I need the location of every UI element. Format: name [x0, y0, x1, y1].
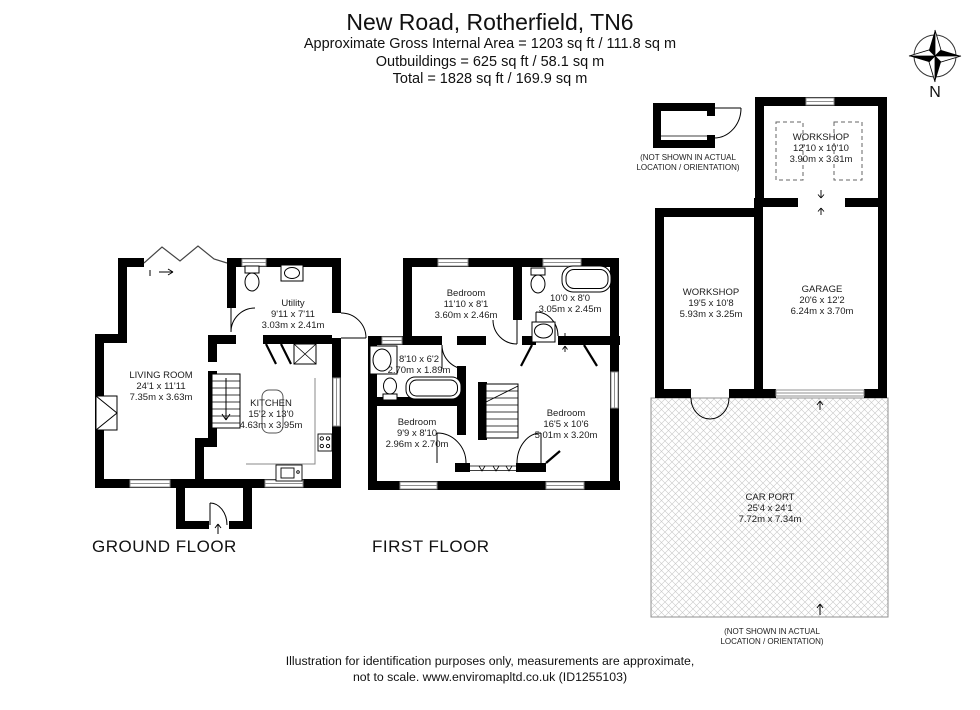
- room-label-bedroom-1: Bedroom11'10 x 8'13.60m x 2.46m: [435, 289, 498, 321]
- kitchen-sink-icon: [276, 465, 302, 481]
- room-label-bathroom-1: 10'0 x 8'03.05m x 2.45m: [539, 294, 602, 316]
- footer-line-1: Illustration for identification purposes…: [0, 653, 980, 669]
- footer-disclaimer: Illustration for identification purposes…: [0, 653, 980, 685]
- ground-floor-title: GROUND FLOOR: [92, 537, 237, 557]
- garage-door: [776, 390, 864, 396]
- workshop1-threshold-arrows: [818, 190, 824, 215]
- room-label-workshop-2: WORKSHOP19'5 x 10'85.93m x 3.25m: [680, 288, 743, 320]
- footer-line-2: not to scale. www.enviromapltd.co.uk (ID…: [0, 669, 980, 685]
- room-label-kitchen: KITCHEN15'2 x 13'04.63m x 3.95m: [240, 399, 303, 431]
- floorplan-page: New Road, Rotherfield, TN6 Approximate G…: [0, 0, 980, 710]
- room-label-workshop-1: WORKSHOP12'10 x 10'103.90m x 3.31m: [790, 133, 853, 165]
- small-outbuilding-walls: [653, 103, 715, 148]
- compass-north-label: N: [929, 84, 941, 101]
- utility-sink-icon: [281, 265, 303, 281]
- small-outbuilding-door: [714, 108, 741, 138]
- workshop1-window: [806, 98, 834, 105]
- room-label-garage: GARAGE20'6 x 12'26.24m x 3.70m: [791, 285, 854, 317]
- fireplace: [96, 396, 117, 430]
- stove-icon: [318, 434, 332, 451]
- page-title: New Road, Rotherfield, TN6: [0, 8, 980, 36]
- note-not-shown-2: (NOT SHOWN IN ACTUALLOCATION / ORIENTATI…: [720, 627, 823, 646]
- landing-open-edge: [470, 466, 516, 471]
- compass-rose-icon: N: [903, 20, 967, 102]
- zigzag-arrow: [150, 269, 173, 276]
- header: New Road, Rotherfield, TN6 Approximate G…: [0, 8, 980, 89]
- room-label-living-room: LIVING ROOM24'1 x 11'117.35m x 3.63m: [129, 371, 192, 403]
- room-label-carport: CAR PORT25'4 x 24'17.72m x 7.34m: [739, 493, 802, 525]
- staircase: [212, 374, 240, 428]
- cupboards: [266, 344, 316, 364]
- room-label-bathroom-2: 8'10 x 6'22.70m x 1.89m: [388, 355, 451, 377]
- first-floor-staircase: [486, 384, 518, 438]
- first-floor-title: FIRST FLOOR: [372, 537, 490, 557]
- note-not-shown-1: (NOT SHOWN IN ACTUALLOCATION / ORIENTATI…: [636, 153, 739, 172]
- room-label-utility: Utility9'11 x 7'113.03m x 2.41m: [262, 299, 325, 331]
- outbuildings-area: Outbuildings = 625 sq ft / 58.1 sq m: [0, 54, 980, 72]
- room-label-bedroom-2: Bedroom9'9 x 8'102.96m x 2.70m: [386, 418, 449, 450]
- gross-internal-area: Approximate Gross Internal Area = 1203 s…: [0, 36, 980, 54]
- utility-toilet-icon: [245, 266, 259, 291]
- open-wall-zigzag: [144, 246, 227, 263]
- room-label-bedroom-3: Bedroom16'5 x 10'65.01m x 3.20m: [535, 409, 598, 441]
